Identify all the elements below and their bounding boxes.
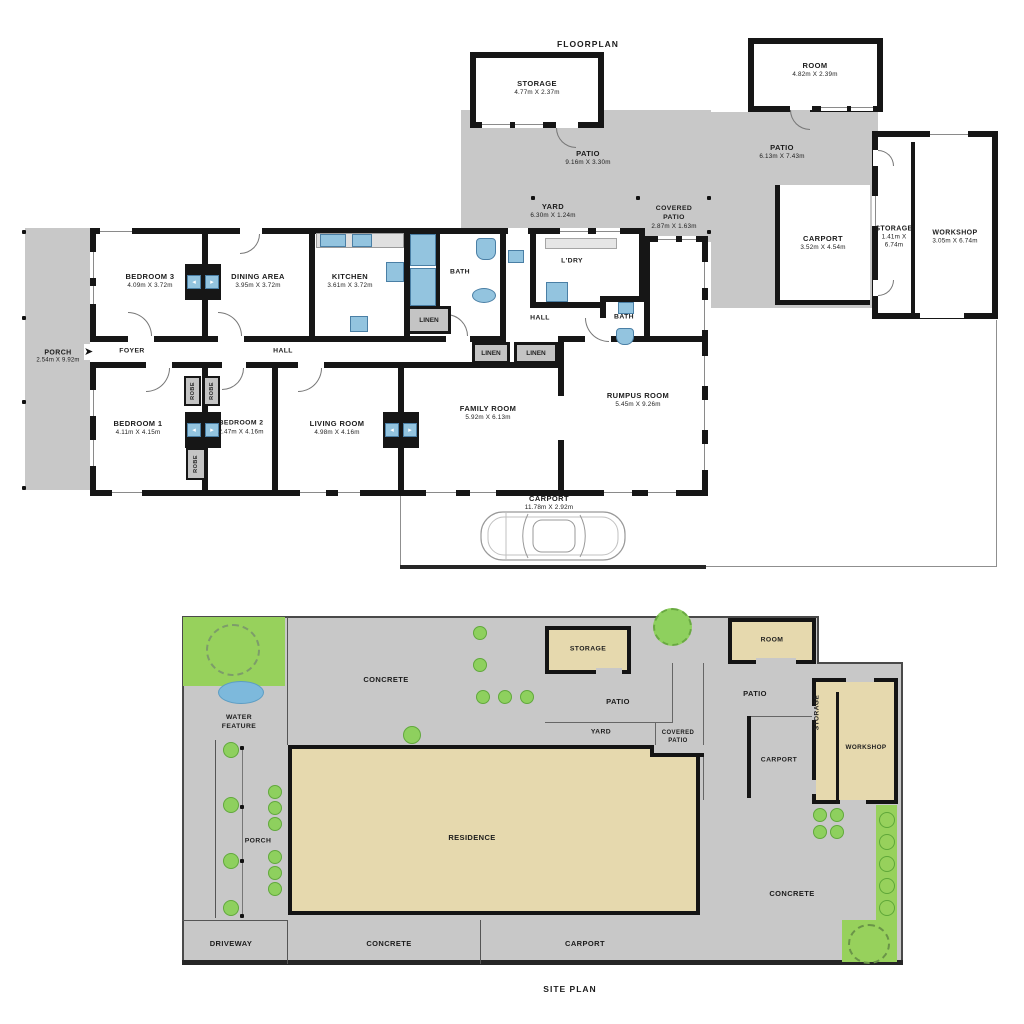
post-dot xyxy=(707,230,711,234)
shrub-icon xyxy=(403,726,421,744)
kitchen-label: KITCHEN3.61m X 3.72m xyxy=(327,272,372,290)
hall2-label: HALL xyxy=(530,315,550,324)
ldry-label: L'DRY xyxy=(561,258,583,267)
post-dot xyxy=(531,196,535,200)
living-label: LIVING ROOM4.98m X 4.16m xyxy=(310,419,365,437)
shrub-icon xyxy=(813,808,827,822)
window-gap xyxy=(846,678,874,682)
window xyxy=(515,121,543,128)
patio-right-label: PATIO 6.13m X 7.43m xyxy=(759,143,804,161)
site-workshop-divider xyxy=(836,692,839,804)
car-icon xyxy=(478,508,628,569)
door-gap xyxy=(840,800,866,804)
strip-divider xyxy=(480,920,481,964)
shrub-icon xyxy=(268,785,282,799)
yard-label: YARD 6.30m X 1.24m xyxy=(530,202,575,220)
shrub-icon xyxy=(498,690,512,704)
shrub-icon xyxy=(268,801,282,815)
porch-post xyxy=(240,746,244,750)
carport-right-label: CARPORT 3.52m X 4.54m xyxy=(800,234,845,252)
robe-closet: ROBE xyxy=(184,376,201,406)
site-concrete-bottom-label: CONCRETE xyxy=(366,939,411,949)
storage-top-label: STORAGE 4.77m X 2.37m xyxy=(514,79,559,97)
porch-post xyxy=(240,914,244,918)
slider-right-icon: ▸ xyxy=(205,275,219,289)
window xyxy=(701,444,708,470)
shrub-icon xyxy=(268,882,282,896)
boundary-line xyxy=(703,566,997,567)
site-storage-label: STORAGE xyxy=(570,646,606,655)
floorplan-page: FLOORPLAN STORAGE 4.77m X 2.37m PATIO 9.… xyxy=(0,0,1024,1024)
window xyxy=(426,489,456,496)
shrub-icon xyxy=(520,690,534,704)
site-covered-patio-label: COVERED PATIO xyxy=(654,730,702,746)
site-storage-vertical-label: STORAGE xyxy=(814,695,821,731)
strip-divider xyxy=(287,920,288,964)
sink-icon xyxy=(320,234,346,247)
boundary-line xyxy=(400,494,401,568)
window xyxy=(701,356,708,386)
bedroom2-label: BEDROOM 22.47m X 4.16m xyxy=(218,420,263,437)
fridge-icon xyxy=(386,262,404,282)
door-gap xyxy=(558,396,564,440)
door-gap xyxy=(128,336,154,342)
porch-post xyxy=(22,486,26,490)
site-bottom-edge xyxy=(182,960,903,965)
shrub-icon xyxy=(268,866,282,880)
shrub-icon xyxy=(476,690,490,704)
shrub-icon xyxy=(268,850,282,864)
shrub-outline-icon xyxy=(879,900,895,916)
bath1-label: BATH xyxy=(450,269,470,278)
shrub-icon xyxy=(830,825,844,839)
shrub-icon xyxy=(473,658,487,672)
site-base-mid xyxy=(703,616,818,964)
site-driveway-label: DRIVEWAY xyxy=(210,939,253,949)
window xyxy=(300,489,326,496)
window xyxy=(648,489,676,496)
shrub-outline-icon xyxy=(879,834,895,850)
foyer-label: FOYER xyxy=(119,348,144,357)
floorplan-title: FLOORPLAN xyxy=(557,39,619,49)
robe-closet: ROBE xyxy=(186,448,206,480)
porch-post xyxy=(22,400,26,404)
window xyxy=(701,262,708,288)
water-feature-icon xyxy=(218,681,264,704)
patio-line xyxy=(672,663,673,723)
shrub-outline-icon xyxy=(879,856,895,872)
sliding-door: ◂▸ xyxy=(185,264,221,300)
window xyxy=(112,489,142,496)
divider-line xyxy=(287,617,288,745)
porch-label: PORCH 2.54m X 9.92m xyxy=(26,349,90,366)
bath2-label: BATH xyxy=(614,314,634,323)
rumpus-room xyxy=(558,336,708,496)
porch-post xyxy=(240,805,244,809)
site-workshop-building xyxy=(812,678,898,804)
residence-step-notch xyxy=(650,745,704,757)
covered-patio-label: COVERED PATIO 2.87m X 1.63m xyxy=(644,205,704,231)
toilet-icon xyxy=(616,328,634,345)
post-dot xyxy=(707,196,711,200)
site-porch-label: PORCH xyxy=(245,838,272,847)
slider-right-icon: ▸ xyxy=(403,423,417,437)
window xyxy=(482,121,510,128)
bedroom3-label: BEDROOM 34.09m X 3.72m xyxy=(125,272,174,290)
basin-icon xyxy=(472,288,496,303)
family-label: FAMILY ROOM5.92m X 6.13m xyxy=(460,404,517,422)
door-gap xyxy=(920,312,964,318)
stove-icon xyxy=(352,234,372,247)
shrub-outline-icon xyxy=(879,812,895,828)
shower-icon xyxy=(410,234,436,266)
bathtub-icon xyxy=(410,268,436,306)
room-top-label: ROOM 4.82m X 2.39m xyxy=(792,61,837,79)
door-gap xyxy=(218,336,244,342)
shrub-icon xyxy=(830,808,844,822)
hall-label: HALL xyxy=(273,348,293,357)
window xyxy=(658,236,676,243)
door-gap xyxy=(812,780,816,794)
workshop-label: WORKSHOP 3.05m X 6.74m xyxy=(932,228,977,245)
shrub-icon xyxy=(223,797,239,813)
window xyxy=(682,236,696,243)
family-room xyxy=(398,362,564,496)
linen-closet: LINEN xyxy=(514,342,558,364)
shrub-icon xyxy=(223,742,239,758)
window xyxy=(596,228,620,235)
site-carport-bottom-label: CARPORT xyxy=(565,939,605,949)
site-patio-right-label: PATIO xyxy=(743,689,767,699)
yard-line xyxy=(545,722,673,723)
site-boundary xyxy=(817,616,819,664)
site-carport-label: CARPORT xyxy=(761,757,797,766)
tree-icon xyxy=(653,608,692,646)
window xyxy=(560,228,588,235)
dining-label: DINING AREA3.95m X 3.72m xyxy=(231,272,285,290)
sliding-door: ◂▸ xyxy=(383,412,419,448)
window xyxy=(338,489,360,496)
window xyxy=(90,252,97,278)
water-feature-label: WATER FEATURE xyxy=(215,714,263,732)
window xyxy=(930,131,968,138)
window xyxy=(100,228,132,235)
boundary-line xyxy=(996,320,997,567)
slider-left-icon: ◂ xyxy=(187,275,201,289)
laundry-bench xyxy=(545,238,617,249)
storage-right-label: STORAGE 1.41m X 6.74m xyxy=(874,224,914,249)
window xyxy=(701,300,708,330)
washer-icon xyxy=(546,282,568,302)
bedroom1-label: BEDROOM 14.11m X 4.15m xyxy=(113,419,162,437)
window xyxy=(470,489,496,496)
site-concrete-top-label: CONCRETE xyxy=(363,675,408,685)
porch-post-line xyxy=(242,747,243,917)
window xyxy=(90,286,97,304)
door-gap xyxy=(756,658,796,664)
tree-outline-icon xyxy=(848,924,890,964)
linen-closet: LINEN xyxy=(472,342,510,364)
window xyxy=(90,390,97,416)
basin-icon xyxy=(508,250,524,263)
window xyxy=(851,104,873,111)
patio-right-line xyxy=(703,663,704,800)
site-room-label: ROOM xyxy=(761,637,784,646)
linen-closet: LINEN xyxy=(407,306,451,334)
shrub-icon xyxy=(268,817,282,831)
post-dot xyxy=(636,196,640,200)
window xyxy=(872,196,879,226)
site-boundary xyxy=(818,662,903,664)
site-concrete-right-label: CONCRETE xyxy=(769,889,814,899)
porch-post xyxy=(22,230,26,234)
door-gap xyxy=(596,668,622,674)
site-workshop-label: WORKSHOP xyxy=(846,744,887,752)
shrub-icon xyxy=(223,900,239,916)
site-carport-wall xyxy=(747,716,751,798)
wall xyxy=(436,234,440,306)
shrub-icon xyxy=(223,853,239,869)
rumpus-ext xyxy=(644,236,708,342)
window xyxy=(701,400,708,430)
entry-arrow-icon: ➤ xyxy=(84,347,93,358)
porch-post xyxy=(22,316,26,320)
site-boundary xyxy=(901,663,903,964)
slider-left-icon: ◂ xyxy=(385,423,399,437)
porch-post xyxy=(240,859,244,863)
window xyxy=(604,489,632,496)
site-patio-label: PATIO xyxy=(606,697,630,707)
shrub-icon xyxy=(813,825,827,839)
window xyxy=(90,440,97,466)
door-gap xyxy=(446,336,470,342)
rumpus-label: RUMPUS ROOM5.45m X 9.26m xyxy=(607,391,669,409)
porch-line xyxy=(215,740,216,918)
basin-icon xyxy=(618,302,634,314)
slider-left-icon: ◂ xyxy=(187,423,201,437)
sliding-door: ◂▸ xyxy=(185,412,221,448)
tree-outline-icon xyxy=(206,624,260,676)
site-yard-label: YARD xyxy=(591,729,611,738)
residence-building xyxy=(288,745,700,915)
siteplan-title: SITE PLAN xyxy=(543,984,596,994)
toilet-icon xyxy=(476,238,496,260)
window xyxy=(821,104,847,111)
slider-right-icon: ▸ xyxy=(205,423,219,437)
shrub-outline-icon xyxy=(879,878,895,894)
robe-closet: ROBE xyxy=(203,376,220,406)
carport-top-line xyxy=(747,716,812,717)
shrub-icon xyxy=(473,626,487,640)
residence-label: RESIDENCE xyxy=(448,833,495,843)
patio-top-label: PATIO 9.16m X 3.30m xyxy=(565,149,610,167)
island-sink-icon xyxy=(350,316,368,332)
strip-line xyxy=(182,920,288,921)
door-gap xyxy=(508,228,528,234)
